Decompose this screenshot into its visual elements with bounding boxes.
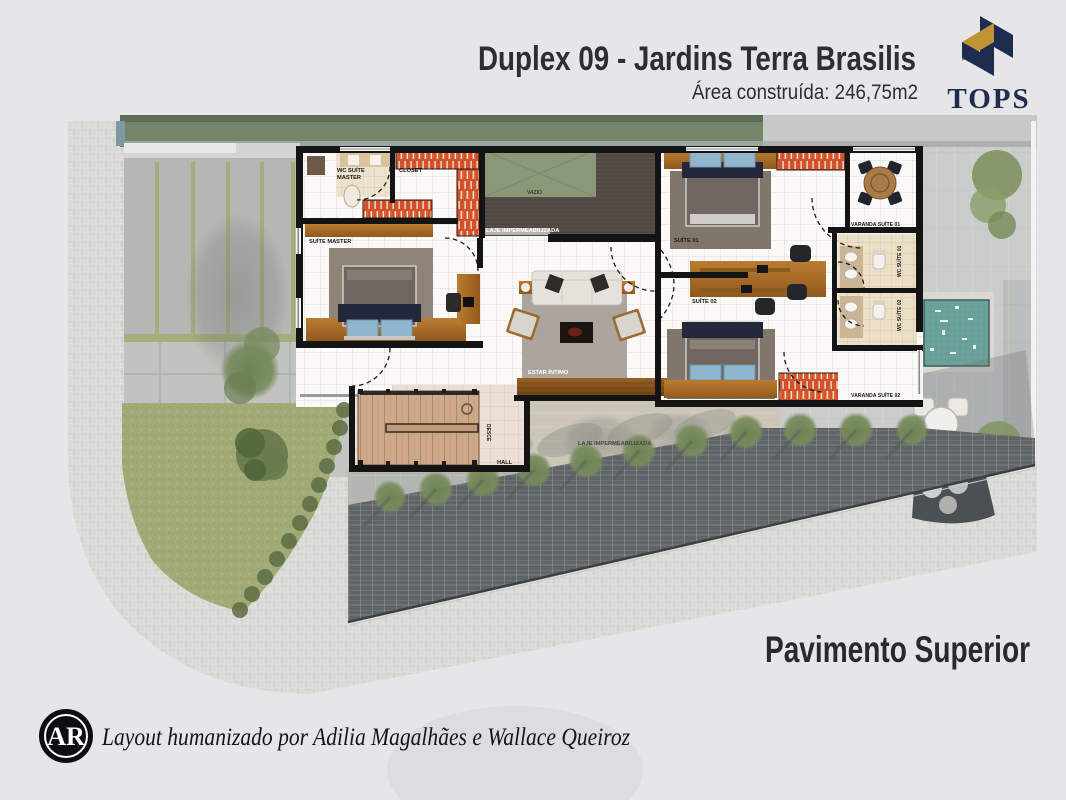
svg-text:Duplex 09 - Jardins Terra Bras: Duplex 09 - Jardins Terra Brasilis [478, 40, 916, 78]
svg-text:TOPS: TOPS [947, 83, 1030, 115]
svg-text:VAZIO: VAZIO [527, 190, 542, 196]
svg-text:SUÍTE MASTER: SUÍTE MASTER [309, 237, 351, 245]
svg-text:VARANDA SUÍTE 01: VARANDA SUÍTE 01 [851, 220, 900, 228]
svg-text:WC SUÍTE 02: WC SUÍTE 02 [895, 299, 903, 331]
svg-text:HALL: HALL [497, 460, 513, 466]
svg-text:Pavimento Superior: Pavimento Superior [765, 629, 1030, 670]
svg-text:AR: AR [47, 722, 85, 751]
svg-text:LAJE IMPERMEABILIZADA: LAJE IMPERMEABILIZADA [578, 441, 651, 447]
svg-text:WC SUÍTE: WC SUÍTE [337, 166, 365, 174]
svg-text:VARANDA: VARANDA [315, 348, 343, 354]
svg-text:MASTER: MASTER [337, 175, 361, 181]
svg-text:ESTAR ÍNTIMO: ESTAR ÍNTIMO [528, 368, 569, 376]
svg-text:Layout humanizado por Adilia M: Layout humanizado por Adilia Magalhães e… [101, 724, 630, 751]
svg-text:WC SUÍTE 01: WC SUÍTE 01 [895, 245, 903, 277]
svg-text:CLOSET: CLOSET [399, 168, 423, 174]
svg-text:Área construída: 246,75m2: Área construída: 246,75m2 [692, 81, 918, 104]
svg-text:SUÍTE 02: SUÍTE 02 [692, 297, 717, 305]
svg-text:LAJE IMPERMEABILIZADA: LAJE IMPERMEABILIZADA [486, 228, 559, 234]
svg-text:VARANDA SUÍTE 02: VARANDA SUÍTE 02 [851, 391, 900, 399]
svg-text:SUÍTE 01: SUÍTE 01 [674, 236, 699, 244]
svg-text:DESCE: DESCE [485, 424, 491, 442]
